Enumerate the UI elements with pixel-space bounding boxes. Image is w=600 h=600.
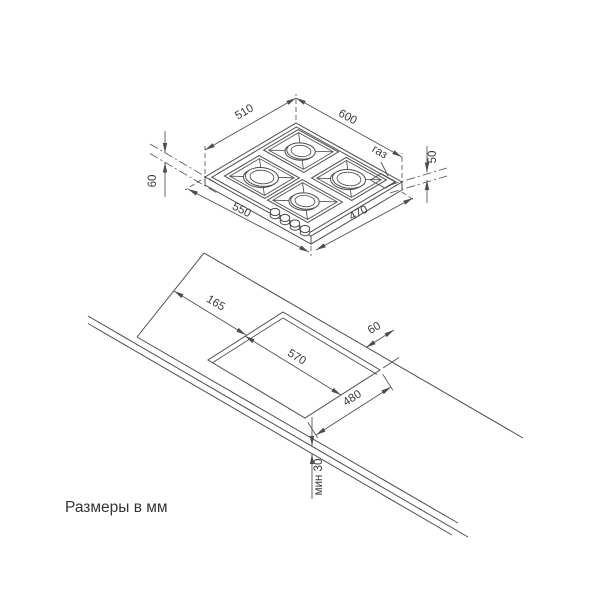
dim-label-50-gas: 50 (427, 151, 439, 164)
dimension-570: 570 (245, 336, 341, 395)
knob (290, 220, 300, 230)
dim-label-570: 570 (285, 347, 308, 367)
caption-dimensions-in-mm: Размеры в мм (65, 499, 168, 516)
dimension-60-back: 60 (366, 320, 399, 368)
page: 510 600 550 470 60 (0, 0, 600, 600)
dimension-600: 600 (296, 98, 402, 178)
dimension-50-gas: 50 (390, 146, 447, 203)
gas-label: газ (370, 143, 389, 161)
burner-front-left (225, 156, 300, 199)
dim-label-470: 470 (347, 204, 370, 224)
knob (270, 208, 280, 218)
dim-label-600: 600 (336, 107, 359, 127)
worktop-cutout-view: 165 570 480 60 мин 30 (88, 253, 523, 537)
hob-isometric-view: 510 600 550 470 60 (147, 94, 447, 256)
dim-label-min-30: мин 30 (313, 459, 325, 496)
worktop-left-end-edge (137, 253, 204, 337)
dimension-165: 165 (174, 291, 246, 335)
dim-label-60-height: 60 (147, 175, 159, 188)
worktop-back-edge (204, 253, 523, 438)
dimension-60-height: 60 (147, 131, 218, 197)
knob (300, 225, 310, 235)
installation-diagram: 510 600 550 470 60 (0, 0, 600, 600)
dimension-550: 550 (185, 180, 311, 256)
dim-label-165: 165 (204, 293, 227, 313)
dimension-470: 470 (316, 192, 415, 250)
dim-label-480: 480 (341, 388, 364, 408)
dimension-480: 480 (308, 374, 393, 438)
dim-label-60-back: 60 (366, 320, 383, 337)
knob (280, 214, 290, 224)
dimension-510: 510 (205, 94, 296, 174)
dim-label-510: 510 (233, 102, 256, 122)
